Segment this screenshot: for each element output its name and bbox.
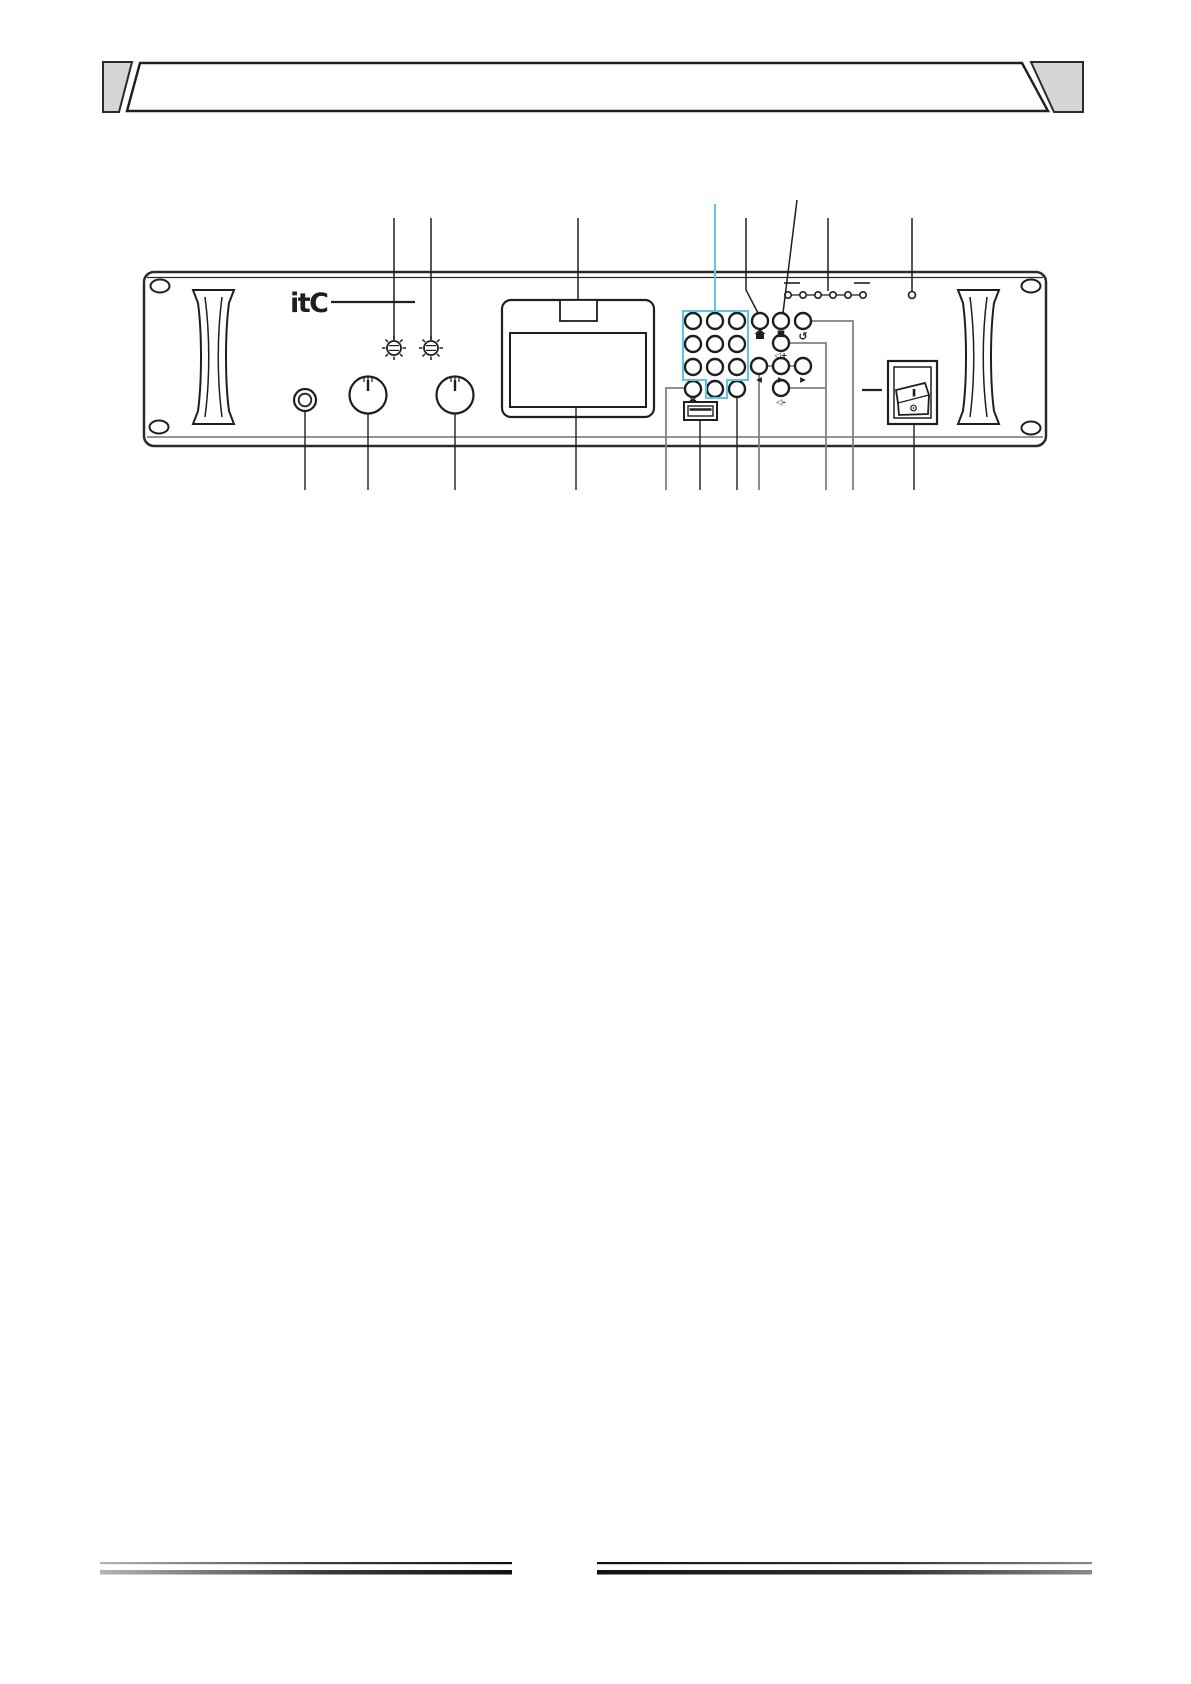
indicator-led: [845, 292, 851, 298]
keypad-button: [707, 381, 723, 397]
mount-hole-bottom-right: [1022, 422, 1041, 435]
usb-port: [684, 402, 717, 420]
keypad-button: [707, 336, 723, 352]
volume-knob-1: [350, 376, 387, 414]
play-icon: ▶: [778, 375, 784, 384]
footer-line-left-thick: [100, 1570, 512, 1575]
indicator-led: [860, 292, 866, 298]
mount-hole-bottom-left: [150, 421, 169, 434]
stop-icon: [778, 331, 785, 338]
ir-receiver-window: [560, 300, 597, 321]
keypad-button-asterisk: [685, 381, 701, 397]
keypad-button: [707, 313, 723, 329]
return-icon: ↺: [798, 330, 807, 343]
volume-down-icon: ◁-: [775, 398, 785, 407]
mount-hole-top-right: [1022, 280, 1041, 293]
header-title-band: [127, 63, 1048, 111]
keypad-button: [707, 359, 723, 375]
footer-line-right-thick: [597, 1570, 1092, 1575]
keypad-button: [729, 313, 745, 329]
manual-page: itC: [0, 0, 1191, 1684]
power-on-label: I: [912, 389, 915, 399]
display-screen: [510, 333, 646, 407]
volume-knob-2: [437, 376, 474, 414]
header-banner: [103, 62, 1083, 112]
volume-up-icon: ◁+: [774, 351, 788, 360]
next-icon: ▶: [800, 375, 806, 384]
volume-up-button: [773, 335, 789, 351]
mic-jack: [294, 389, 316, 411]
home-button: [752, 313, 768, 329]
mount-hole-top-left: [151, 280, 170, 293]
front-panel-diagram: itC: [144, 200, 1046, 490]
keypad-button: [685, 336, 701, 352]
power-switch: I: [888, 361, 937, 424]
indicator-led: [815, 292, 821, 298]
return-button: [795, 313, 811, 329]
prev-button: [751, 358, 767, 374]
display-module: [502, 300, 654, 490]
indicator-led: [830, 292, 836, 298]
next-button: [795, 358, 811, 374]
keypad-button: [685, 359, 701, 375]
power-indicator-led: [909, 292, 916, 299]
brand-logo: itC: [290, 288, 328, 319]
stop-button: [773, 313, 789, 329]
keypad-button: [685, 313, 701, 329]
keypad-button: [729, 359, 745, 375]
keypad-button: [729, 336, 745, 352]
indicator-led: [800, 292, 806, 298]
keypad-button: [729, 381, 745, 397]
footer-rules: [100, 1562, 1092, 1575]
prev-icon: ◀: [756, 375, 762, 384]
play-button: [773, 358, 789, 374]
footer-line-right-thin: [597, 1562, 1092, 1564]
footer-line-left-thin: [100, 1562, 512, 1564]
